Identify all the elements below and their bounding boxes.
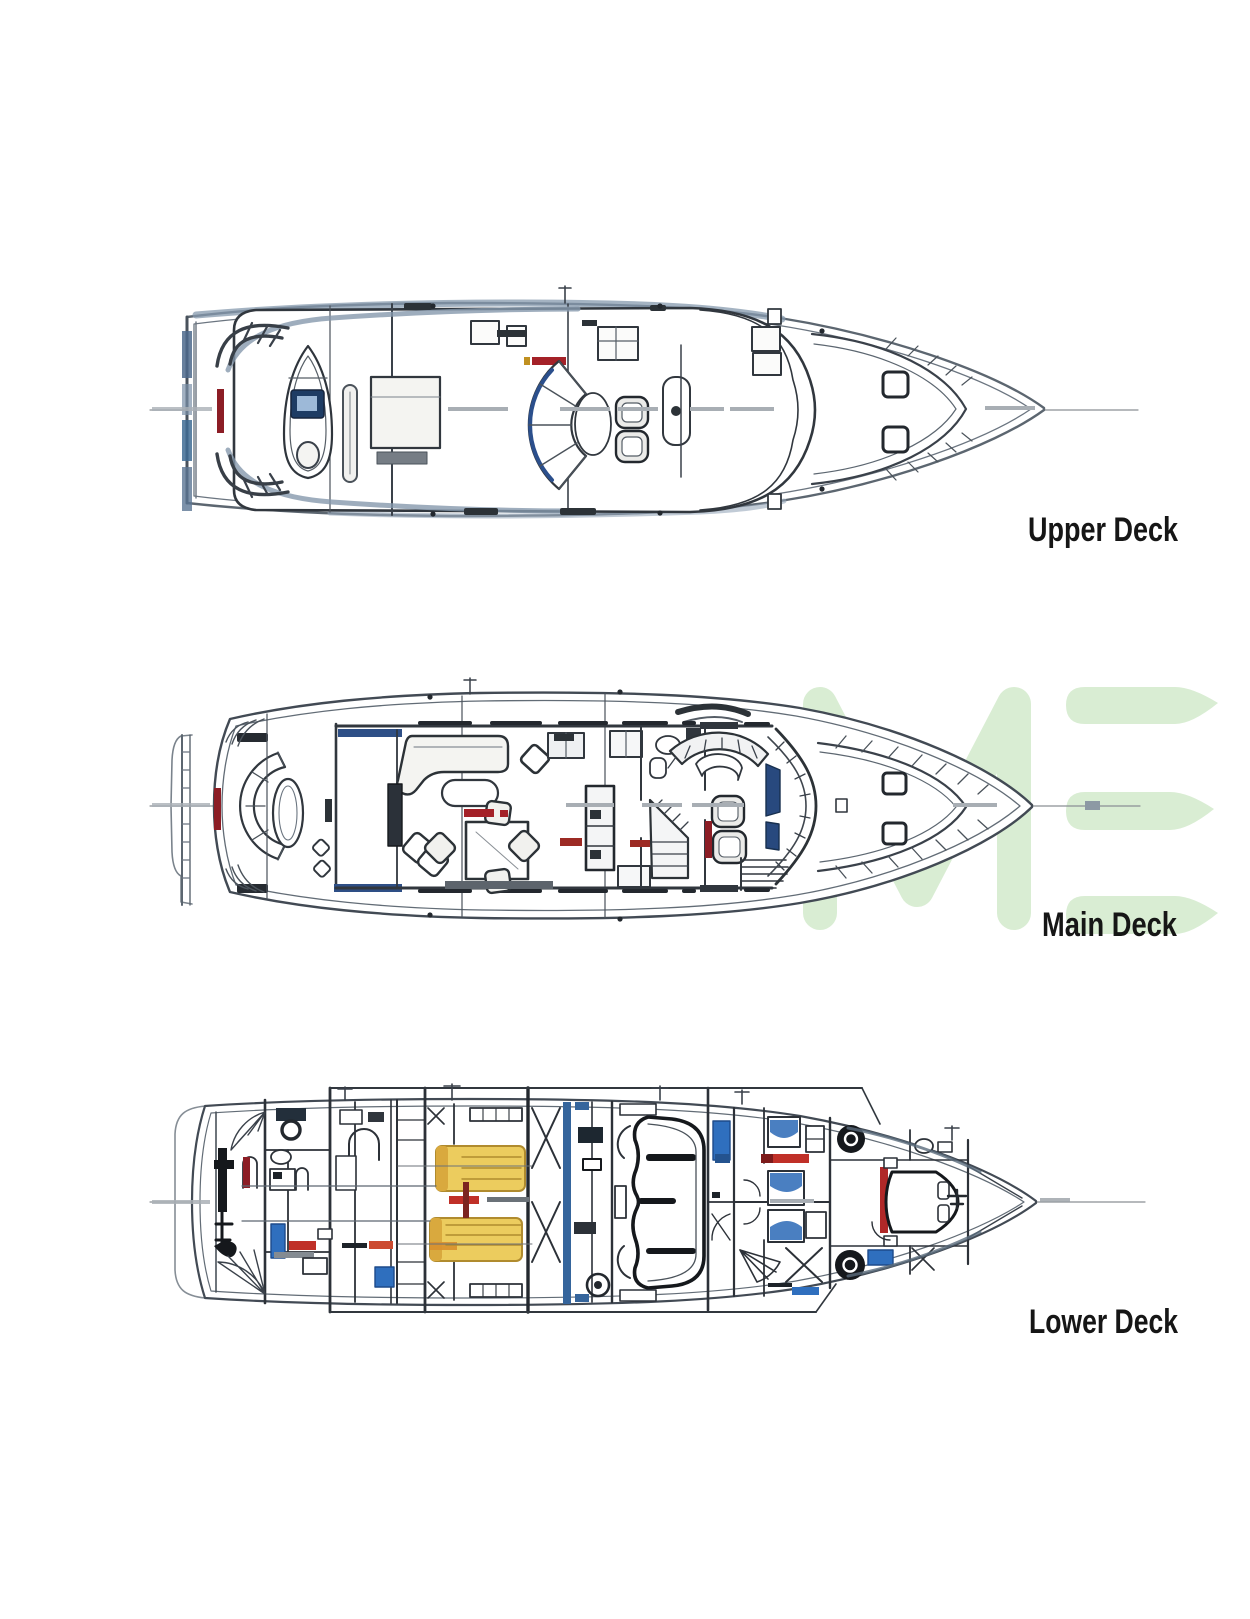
svg-text:Lower Deck: Lower Deck [1029, 1303, 1178, 1341]
svg-text:Upper Deck: Upper Deck [1028, 511, 1178, 549]
svg-text:Main Deck: Main Deck [1042, 906, 1177, 944]
